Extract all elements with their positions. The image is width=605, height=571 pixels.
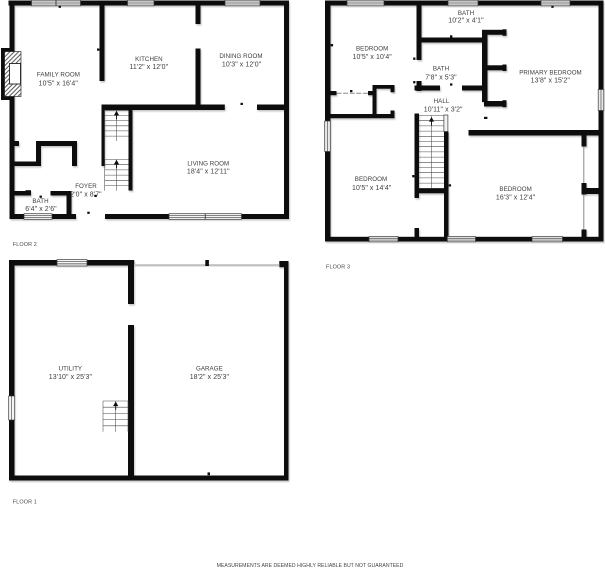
svg-text:13'8" x 15'2": 13'8" x 15'2": [531, 77, 571, 84]
svg-text:FLOOR 1: FLOOR 1: [13, 499, 37, 505]
svg-text:BATH: BATH: [32, 198, 48, 205]
svg-text:10'5" x 10'4": 10'5" x 10'4": [353, 54, 393, 61]
svg-text:FLOOR 2: FLOOR 2: [13, 242, 37, 248]
svg-text:2'0" x 8'7": 2'0" x 8'7": [70, 192, 102, 199]
svg-text:10'3" x 12'0": 10'3" x 12'0": [222, 61, 262, 68]
svg-text:10'11" x 3'2": 10'11" x 3'2": [424, 107, 463, 114]
svg-text:KITCHEN: KITCHEN: [135, 56, 163, 63]
svg-text:11'2" x 12'0": 11'2" x 12'0": [129, 64, 168, 71]
svg-text:FLOOR 3: FLOOR 3: [326, 264, 350, 270]
svg-text:BEDROOM: BEDROOM: [356, 46, 388, 53]
svg-text:13'10" x 25'3": 13'10" x 25'3": [49, 374, 93, 381]
svg-text:LIVING ROOM: LIVING ROOM: [187, 160, 229, 167]
svg-text:HALL: HALL: [434, 98, 450, 105]
svg-text:18'2" x 25'3": 18'2" x 25'3": [190, 374, 230, 381]
svg-text:18'4" x 12'11": 18'4" x 12'11": [187, 169, 230, 176]
svg-text:16'3" x 12'4": 16'3" x 12'4": [496, 195, 536, 202]
svg-text:FAMILY ROOM: FAMILY ROOM: [37, 72, 80, 79]
svg-text:DINING ROOM: DINING ROOM: [219, 53, 262, 60]
svg-text:BEDROOM: BEDROOM: [499, 186, 531, 193]
svg-text:BATH: BATH: [458, 10, 474, 17]
svg-text:UTILITY: UTILITY: [59, 366, 82, 373]
svg-text:GARAGE: GARAGE: [196, 366, 223, 373]
svg-text:PRIMARY BEDROOM: PRIMARY BEDROOM: [519, 70, 582, 77]
svg-text:BATH: BATH: [433, 66, 449, 73]
svg-text:10'2" x 4'1": 10'2" x 4'1": [448, 18, 484, 25]
svg-text:FOYER: FOYER: [75, 183, 97, 190]
svg-text:BEDROOM: BEDROOM: [355, 176, 387, 183]
svg-text:10'5" x 16'4": 10'5" x 16'4": [39, 80, 79, 87]
svg-text:7'8" x 5'3": 7'8" x 5'3": [425, 74, 457, 81]
svg-text:MEASUREMENTS ARE DEEMED HIGHLY: MEASUREMENTS ARE DEEMED HIGHLY RELIABLE …: [217, 563, 404, 569]
svg-text:10'5" x 14'4": 10'5" x 14'4": [352, 185, 392, 192]
svg-text:6'4" x 2'6": 6'4" x 2'6": [25, 206, 57, 213]
